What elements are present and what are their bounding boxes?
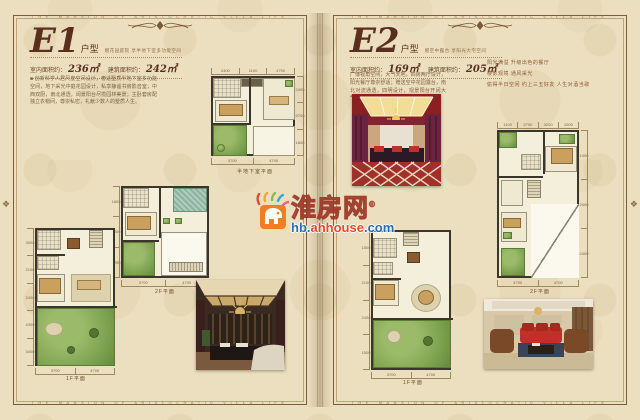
plan-stairs: [169, 262, 203, 272]
photo-e2-sofa-room-image: [484, 299, 593, 369]
e1-code: E1: [30, 21, 80, 61]
plan-caption: 2F平面: [489, 288, 591, 295]
plan-balcony-garden: [123, 242, 155, 276]
e1-tagline: 赠花园庭院 享半地下室多功能空间: [105, 48, 182, 53]
e2-slogan-lines: 阳光满溢 升级出色的餐厅 楼影观境 通风采光 偷得半日空闲 约上三五好友 人生对…: [487, 58, 590, 91]
floorplan-drawing: [211, 76, 295, 156]
dimension-col: 240057001800: [297, 76, 304, 156]
plan-tree: [89, 328, 99, 338]
plan-tree: [67, 346, 75, 354]
plan-shrub: [217, 144, 225, 152]
e1-build-label: 建筑面积约：: [108, 68, 144, 74]
photo-e1-study-room-image: [196, 280, 285, 370]
e1-plan-2f: 180020004200 37004700 2F平面: [113, 180, 217, 296]
e2-description: 广博视角空间，大气天地，四房两厅设计，阳光餐厅尊崇舒适；赠送空中花园露台，南北对…: [350, 72, 446, 94]
plan-garden: [373, 320, 451, 368]
plan-closet: [241, 78, 263, 87]
edge-ornament-right-icon: ❖: [630, 199, 638, 210]
frame-band-text: THE MANSION OF ARISTOCRATIC VILLA LIFE: [18, 14, 302, 19]
plan-bed: [551, 148, 573, 164]
e2-title: E2户型赠空中露台 享阳光大宅空间: [350, 24, 486, 58]
plan-wall: [499, 176, 543, 178]
e2-tagline: 赠空中露台 享阳光大宅空间: [425, 48, 487, 53]
floorplan-drawing: [121, 186, 209, 278]
plan-patio: [45, 322, 63, 336]
plan-tree: [423, 336, 433, 346]
plan-balcony-garden: [499, 132, 517, 148]
plan-desk: [503, 218, 521, 228]
plan-stairs: [89, 230, 103, 248]
plan-plant: [163, 218, 170, 224]
dimension-row: 47004700: [497, 280, 579, 287]
photo-e2-living-room: [352, 94, 441, 186]
watermark-text: 淮房网® hb.ahhouse.com: [291, 192, 394, 234]
plan-wardrobe: [501, 180, 523, 206]
plan-wall: [543, 132, 545, 174]
photo-e1-study-room: [196, 280, 285, 370]
e1-plan-basement: 240011004700 240057001800 37004700 半地下室平…: [205, 68, 305, 176]
e1-indoor-value: 236㎡: [68, 64, 99, 75]
dimension-col: 35002100240043003400: [27, 228, 34, 366]
plan-stairs: [403, 232, 419, 246]
e1-description: ■ 创新科学人居尺度空间设计，奢适墅质半地下室多功能空间，地下采光中庭花园设计，…: [30, 76, 157, 120]
watermark-url: hb.ahhouse.com: [291, 221, 394, 234]
plan-plant: [559, 134, 575, 144]
plan-terrace-garden: [501, 248, 525, 276]
floorplan-drawing: [35, 228, 115, 366]
e2-code: E2: [350, 21, 400, 61]
dimension-row: 37004700: [371, 372, 451, 379]
plan-bathroom: [123, 188, 149, 208]
plan-bed: [39, 278, 61, 294]
dimension-row: 1100270032001000: [497, 122, 579, 129]
e1-build-value: 242㎡: [146, 64, 177, 75]
photo-e2-living-room-image: [352, 94, 441, 186]
plan-wall: [373, 278, 401, 280]
dimension-col: 1500210024001500: [363, 230, 370, 370]
plan-roof-void: [531, 204, 579, 278]
e1-plan-1f: 35002100240043003400 37004700 1F平面: [27, 224, 125, 382]
plan-wall: [249, 78, 251, 124]
e1-title: E1户型赠花园庭院 享半地下室多功能空间: [30, 24, 181, 58]
e2-type-label: 户型: [401, 44, 419, 54]
watermark-brand: 淮房网®: [291, 192, 394, 221]
e2-plan-1f: 1500210024001500 37004700 1F平面: [363, 226, 463, 388]
plan-bed: [127, 216, 151, 230]
e2-slogan-line: 阳光满溢 升级出色的餐厅: [487, 58, 590, 69]
plan-media-table: [219, 104, 243, 116]
plan-kitchen: [373, 238, 397, 258]
dimension-row: 240011004700: [211, 68, 295, 75]
photo-e2-sofa-room: [484, 299, 593, 369]
frame-band-text: THE MANSION OF ARISTOCRATIC VILLA LIFE: [18, 400, 302, 405]
dimension-row: 37004700: [211, 158, 295, 165]
plan-sofa: [269, 96, 289, 105]
floorplan-drawing: [497, 130, 579, 278]
brand-logo-icon: [255, 192, 289, 230]
plan-caption: 1F平面: [363, 379, 463, 386]
e1-type-label: 户型: [81, 44, 99, 54]
dimension-row: 37004700: [35, 368, 115, 375]
plan-wall: [159, 188, 161, 238]
brochure-canvas: ❖ ❖ THE MANSION OF ARISTOCRATIC VILLA LI…: [0, 0, 640, 420]
e2-slogan-line: 偷得半日空闲 约上三五好友 人生对酒当歌: [487, 80, 590, 91]
plan-bathroom: [521, 154, 541, 170]
e2-slogan-line: 楼影观境 通风采光: [487, 69, 590, 80]
registered-mark: ®: [369, 200, 376, 209]
plan-round-table: [418, 290, 434, 305]
plan-bathroom: [37, 256, 59, 270]
plan-open-area: [253, 126, 295, 156]
plan-kitchen: [37, 230, 61, 250]
frame-band-text: THE MANSION OF ARISTOCRATIC VILLA LIFE: [338, 400, 622, 405]
plan-stairs: [527, 180, 541, 198]
floorplan-drawing: [371, 230, 451, 370]
plan-bathroom: [373, 262, 393, 275]
plan-plant: [175, 218, 182, 224]
frame-band-text: THE MANSION OF ARISTOCRATIC VILLA LIFE: [338, 14, 622, 19]
plan-bathroom: [213, 78, 241, 98]
plan-garden: [37, 308, 115, 366]
plan-dining-table: [67, 238, 80, 249]
plan-sofa: [77, 280, 101, 290]
plan-caption: 1F平面: [27, 375, 125, 382]
plan-bed: [375, 284, 395, 300]
dimension-col: 100024002400: [581, 130, 588, 278]
plan-plant: [503, 232, 512, 239]
edge-ornament-left-icon: ❖: [2, 199, 10, 210]
plan-fountain: [387, 330, 401, 343]
plan-dining-table: [407, 252, 420, 263]
plan-caption: 半地下室平面: [205, 168, 305, 175]
e1-indoor-label: 室内面积约：: [30, 68, 66, 74]
plan-skylight: [173, 188, 207, 212]
e2-plan-2f: 1100270032001000 100024002400 47004700 2…: [489, 122, 591, 298]
watermark: 淮房网® hb.ahhouse.com: [255, 192, 394, 234]
plan-plant: [285, 80, 293, 87]
